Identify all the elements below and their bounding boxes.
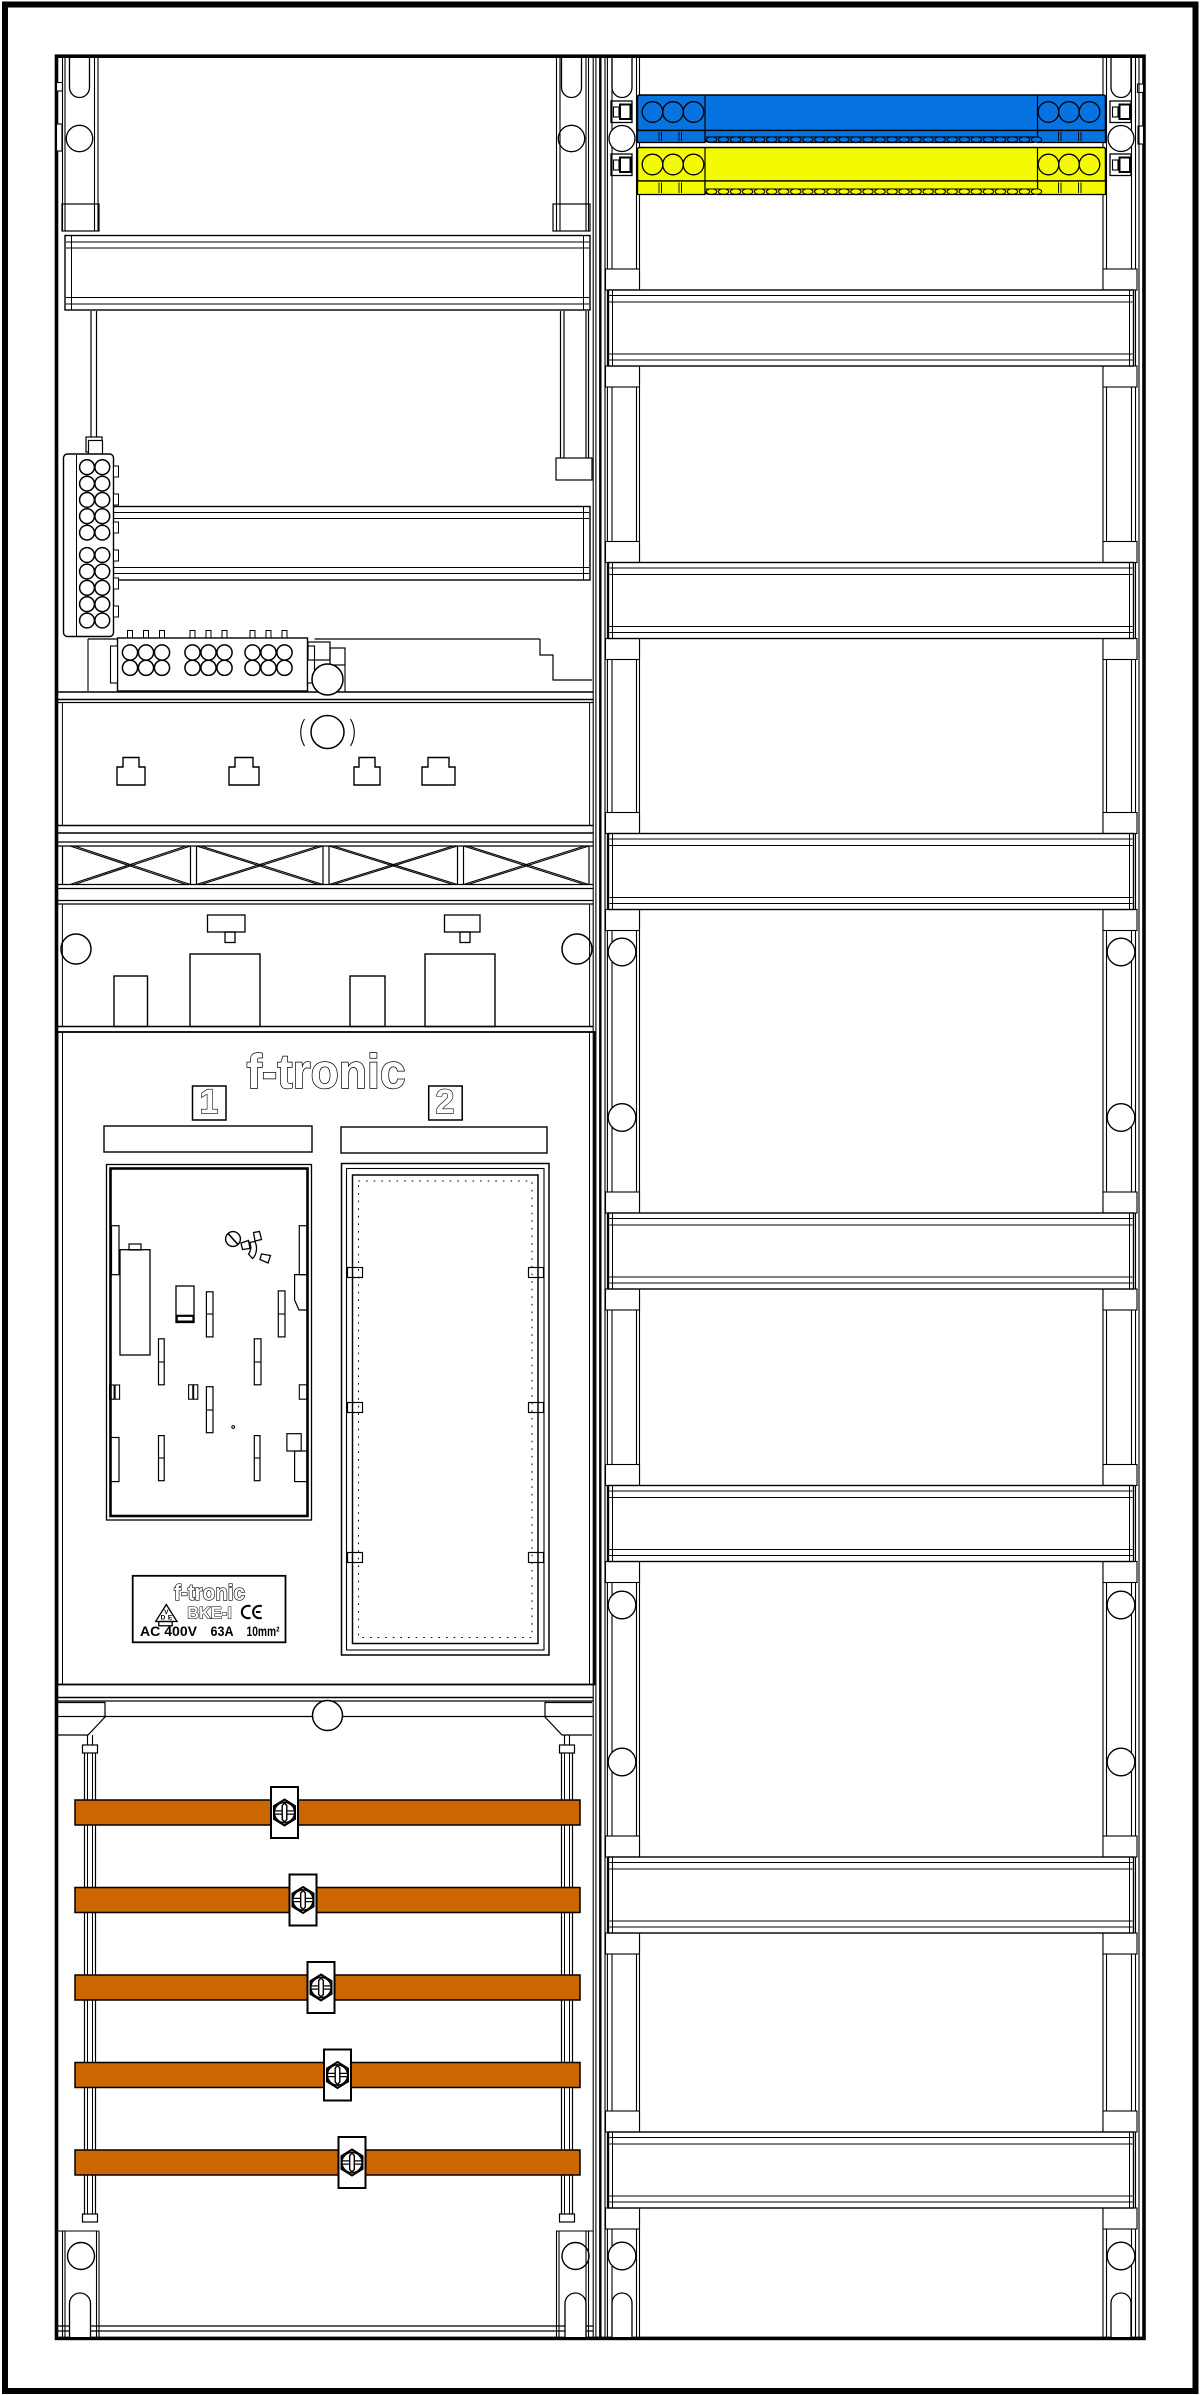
svg-text:AC 400V: AC 400V <box>140 1624 197 1639</box>
svg-text:E: E <box>168 1615 173 1622</box>
svg-text:f-tronic: f-tronic <box>247 1046 406 1099</box>
svg-text:f-tronic: f-tronic <box>174 1580 245 1605</box>
svg-text:63A: 63A <box>211 1624 234 1639</box>
svg-text:BKE-I: BKE-I <box>187 1604 232 1623</box>
svg-text:D: D <box>161 1615 166 1622</box>
svg-text:10mm²: 10mm² <box>247 1624 280 1639</box>
svg-text:2: 2 <box>436 1083 455 1121</box>
svg-text:1: 1 <box>200 1083 219 1121</box>
